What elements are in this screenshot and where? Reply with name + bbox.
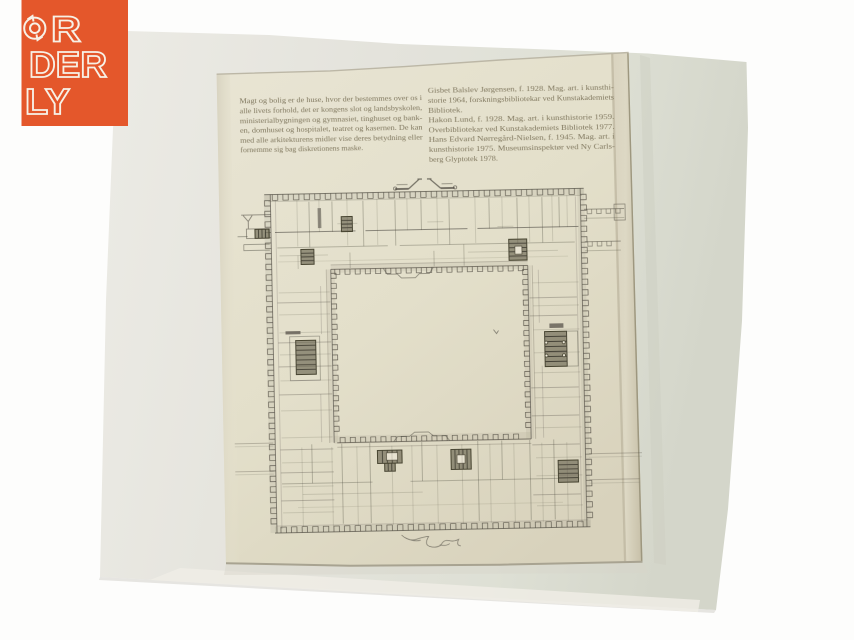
svg-text:berg Glyptotek 1978.: berg Glyptotek 1978. [429,153,498,163]
svg-text:LY: LY [25,81,70,122]
svg-text:DER: DER [29,44,107,85]
svg-text:Bibliotek.: Bibliotek. [428,105,463,115]
